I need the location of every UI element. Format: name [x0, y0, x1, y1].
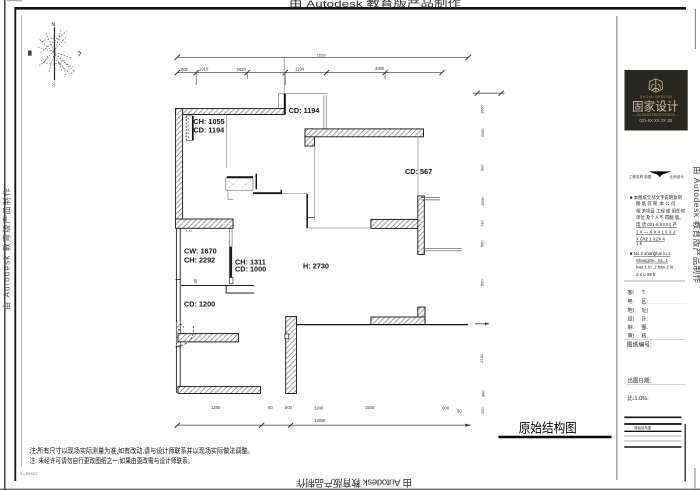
svg-text:图 纸 仅 限 ,本 公 司: 图 纸 仅 限 ,本 公 司 — [636, 200, 675, 207]
svg-text:960: 960 — [481, 390, 486, 397]
svg-text:CW: 1670: CW: 1670 — [184, 246, 217, 255]
svg-text:H: 2730: H: 2730 — [303, 261, 329, 270]
svg-text:2060: 2060 — [480, 128, 485, 137]
svg-text:1 6: 1 6 — [636, 241, 643, 246]
svg-text:11500: 11500 — [314, 418, 326, 423]
svg-text:60: 60 — [268, 405, 273, 410]
svg-text:比:1.0%:: 比:1.0%: — [627, 394, 649, 402]
svg-text:CD: 1000: CD: 1000 — [235, 265, 266, 274]
svg-text:原始结构图: 原始结构图 — [634, 425, 652, 430]
svg-text:1194: 1194 — [295, 67, 305, 72]
svg-text:13500: 13500 — [317, 53, 327, 57]
svg-text:CD: 1194: CD: 1194 — [193, 125, 225, 134]
svg-text:由 Autodesk 教育版产品制作: 由 Autodesk 教育版产品制作 — [296, 477, 412, 489]
svg-text:3240: 3240 — [314, 406, 324, 411]
svg-text:1060: 1060 — [479, 105, 484, 114]
svg-text:CD: 1194: CD: 1194 — [289, 106, 321, 115]
svg-text:600: 600 — [479, 240, 484, 247]
svg-text:— GUJIA INTERIOR DESIGN —: — GUJIA INTERIOR DESIGN — — [633, 113, 680, 117]
svg-text:3300: 3300 — [375, 66, 385, 71]
svg-text:固家设计: 固家设计 — [632, 99, 679, 113]
svg-text:1500: 1500 — [365, 405, 375, 410]
svg-text:■ 本图纸全部文字说明复制: ■ 本图纸全部文字说明复制 — [630, 194, 683, 201]
svg-text:730: 730 — [480, 220, 485, 227]
svg-text:■ No.2 shanghai lu,1: ■ No.2 shanghai lu,1 — [630, 251, 671, 256]
svg-text:890: 890 — [479, 279, 484, 286]
svg-text:相 关项目 工程 使 用任何: 相 关项目 工程 使 用任何 — [636, 207, 685, 214]
svg-text:1500: 1500 — [480, 197, 485, 206]
svg-text:1260: 1260 — [211, 405, 221, 410]
svg-text:ShangGe. ,61,.1: ShangGe. ,61,.1 — [636, 258, 669, 263]
svg-text:900: 900 — [479, 164, 484, 171]
svg-text:900: 900 — [285, 405, 293, 410]
svg-text:单位 及个人不 得翻 版。: 单位 及个人不 得翻 版。 — [636, 214, 684, 221]
svg-text:图纸编号:: 图纸编号: — [627, 341, 652, 349]
svg-text:2 X — X X 4 1 6 X 2: 2 X — X X 4 1 6 X 2 — [636, 229, 676, 234]
svg-text:电 话:021-6 XXXX 产: 电 话:021-6 XXXX 产 — [636, 221, 678, 228]
svg-text:CH: 2292: CH: 2292 — [184, 255, 215, 264]
svg-text:330: 330 — [480, 407, 485, 414]
svg-text:出图日期:: 出图日期: — [627, 377, 651, 385]
svg-text:N: N — [52, 22, 56, 28]
svg-text:G U J I A · D E S I G N: G U J I A · D E S I G N — [640, 95, 673, 99]
svg-text:K—E5+C1: K—E5+C1 — [20, 472, 37, 476]
svg-text:CD: 567: CD: 567 — [405, 167, 432, 176]
svg-text:600: 600 — [442, 406, 450, 411]
svg-text:t=xx: t=xx — [186, 229, 192, 233]
svg-text:由 Autodesk 教育版产品制作: 由 Autodesk 教育版产品制作 — [289, 0, 462, 10]
svg-text:hao 1 lu ,2 hao 2 lo: hao 1 lu ,2 hao 2 lo — [636, 265, 674, 270]
svg-text:900: 900 — [181, 67, 189, 72]
svg-text:工程名称 制图: 工程名称 制图 — [629, 174, 652, 179]
svg-text:8: 8 — [194, 279, 197, 285]
svg-text:原始结构图: 原始结构图 — [519, 421, 577, 436]
svg-text:由 Autodesk 教育版产品制作: 由 Autodesk 教育版产品制作 — [692, 166, 700, 284]
svg-text:CD: 1200: CD: 1200 — [184, 299, 215, 308]
svg-text:30: 30 — [457, 409, 462, 414]
svg-text:d x u 09 h: d x u 09 h — [636, 272, 656, 277]
svg-text:比例设计: 比例设计 — [670, 174, 685, 179]
svg-text:2730: 2730 — [479, 354, 484, 363]
svg-text:021-6X XX 2X 1B: 021-6X XX 2X 1B — [639, 118, 672, 123]
svg-text:1910: 1910 — [199, 67, 209, 72]
svg-text:注: 未经许可请勿自行更改图纸之一,如果由更改需与设计师联系: 注: 未经许可请勿自行更改图纸之一,如果由更改需与设计师联系。 — [30, 456, 194, 465]
svg-text:注:所有尺寸以现场实际测量为准,如有改动,请与设计师联系并以: 注:所有尺寸以现场实际测量为准,如有改动,请与设计师联系并以现场实际做法调整。 — [30, 446, 254, 455]
svg-text:2620: 2620 — [237, 67, 247, 72]
